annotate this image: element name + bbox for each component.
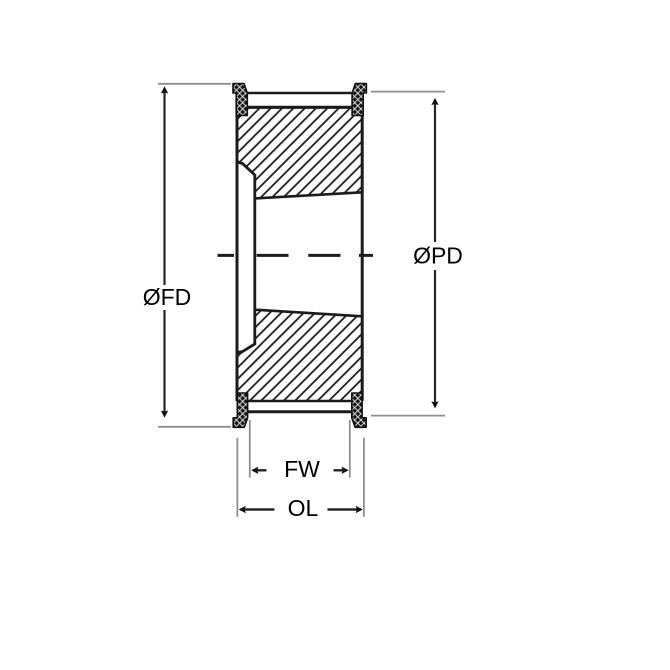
svg-text:ØPD: ØPD	[413, 243, 463, 269]
svg-text:FW: FW	[284, 456, 320, 482]
svg-text:ØFD: ØFD	[143, 284, 192, 310]
svg-text:OL: OL	[288, 495, 319, 521]
